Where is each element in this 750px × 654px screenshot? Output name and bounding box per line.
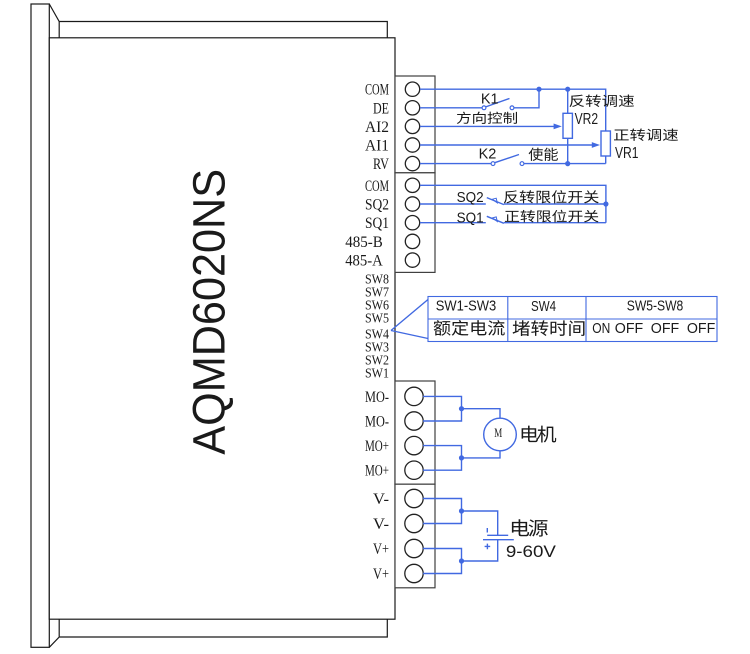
svg-text:COM: COM <box>365 178 389 195</box>
svg-text:K1: K1 <box>481 91 499 107</box>
svg-text:SQ2: SQ2 <box>457 189 484 206</box>
svg-text:SW5: SW5 <box>365 310 389 325</box>
svg-text:OFF: OFF <box>651 320 679 337</box>
svg-text:SQ2: SQ2 <box>365 197 389 214</box>
svg-text:MO+: MO+ <box>365 463 389 480</box>
svg-text:SW1: SW1 <box>365 365 389 380</box>
svg-text:485-B: 485-B <box>345 234 383 251</box>
svg-text:AI2: AI2 <box>365 119 389 136</box>
svg-text:485-A: 485-A <box>345 253 383 270</box>
svg-text:RV: RV <box>373 156 389 173</box>
svg-text:SW4: SW4 <box>531 298 556 315</box>
svg-text:V+: V+ <box>373 541 389 558</box>
svg-text:AQMD6020NS: AQMD6020NS <box>185 169 235 455</box>
svg-text:V-: V- <box>373 491 389 508</box>
svg-text:SW1-SW3: SW1-SW3 <box>436 298 497 315</box>
svg-text:SQ1: SQ1 <box>365 215 389 232</box>
svg-text:V-: V- <box>373 516 389 533</box>
svg-text:VR1: VR1 <box>615 145 639 162</box>
svg-text:COM: COM <box>365 82 389 99</box>
svg-text:M: M <box>494 426 502 440</box>
svg-text:AI1: AI1 <box>365 138 389 155</box>
svg-text:OFF: OFF <box>687 320 715 337</box>
svg-text:VR2: VR2 <box>575 111 599 128</box>
svg-text:MO+: MO+ <box>365 438 389 455</box>
svg-text:MO-: MO- <box>365 389 389 406</box>
svg-text:SW5-SW8: SW5-SW8 <box>627 298 684 315</box>
svg-text:OFF: OFF <box>615 320 643 337</box>
svg-text:K2: K2 <box>479 147 497 163</box>
svg-text:ON: ON <box>592 320 610 337</box>
svg-text:SQ1: SQ1 <box>457 210 484 227</box>
svg-text:MO-: MO- <box>365 414 389 431</box>
svg-text:DE: DE <box>373 100 389 117</box>
svg-text:V+: V+ <box>373 566 389 583</box>
svg-text:9-60V: 9-60V <box>506 543 556 561</box>
